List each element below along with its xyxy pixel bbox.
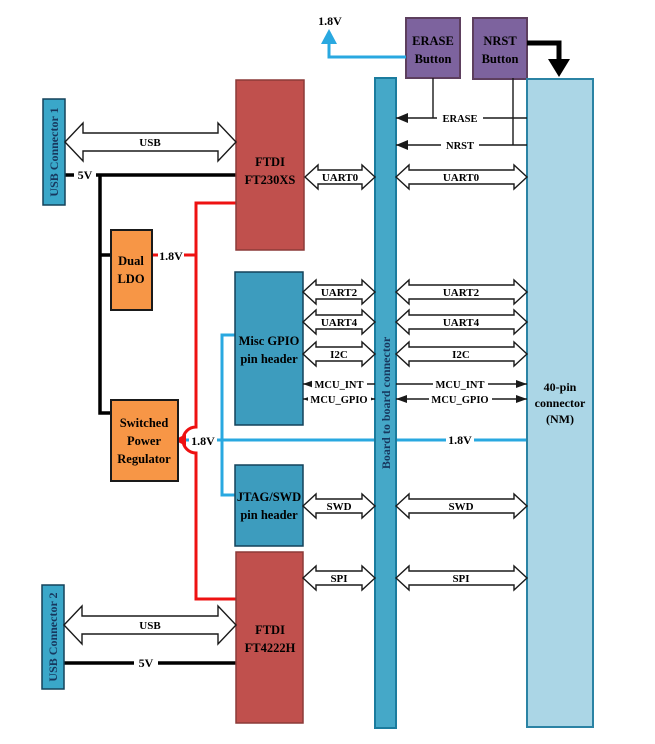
wire-5v-branch bbox=[100, 175, 111, 413]
wire-1v8-erase-pullup bbox=[329, 42, 406, 57]
board-to-board-label: Board to board connector bbox=[379, 336, 393, 469]
label-1v8-top: 1.8V bbox=[318, 14, 342, 28]
erase-button-line2: Button bbox=[415, 52, 452, 66]
spi-left-label: SPI bbox=[330, 573, 347, 585]
erase-button-block bbox=[406, 18, 460, 78]
spi-right-label: SPI bbox=[452, 573, 469, 585]
mcu-gpio-right-label: MCU_GPIO bbox=[431, 395, 488, 406]
wire-1v8-red-vertical bbox=[183, 203, 236, 599]
misc-gpio-header-block bbox=[235, 272, 303, 425]
arrow-right-icon bbox=[516, 380, 527, 388]
jtag-swd-line1: JTAG/SWD bbox=[237, 490, 301, 504]
ftdi-ft4222h-line1: FTDI bbox=[255, 623, 285, 637]
ftdi-ft230xs-line1: FTDI bbox=[255, 155, 285, 169]
ftdi-ft4222h-block bbox=[236, 552, 303, 723]
40pin-line1: 40-pin bbox=[544, 380, 577, 394]
jtag-swd-header-block bbox=[235, 465, 303, 546]
erase-signal-label: ERASE bbox=[442, 114, 477, 125]
usb-top-label: USB bbox=[139, 137, 161, 149]
uart4-left-label: UART4 bbox=[321, 317, 358, 329]
spr-line3: Regulator bbox=[117, 452, 171, 466]
mcu-gpio-left-label: MCU_GPIO bbox=[310, 395, 367, 406]
label-1v8-rail-left: 1.8V bbox=[191, 434, 215, 448]
arrow-left-icon bbox=[396, 395, 407, 403]
label-5v-top: 5V bbox=[78, 168, 93, 182]
nrst-signal-label: NRST bbox=[446, 141, 474, 152]
i2c-right-label: I2C bbox=[452, 349, 470, 361]
uart0-right-label: UART0 bbox=[443, 172, 480, 184]
arrow-up-icon bbox=[321, 29, 337, 44]
nrst-button-line2: Button bbox=[482, 52, 519, 66]
ftdi-ft4222h-line2: FT4222H bbox=[245, 641, 296, 655]
uart0-left-label: UART0 bbox=[322, 172, 359, 184]
label-1v8-rail-right: 1.8V bbox=[448, 433, 472, 447]
swd-left-label: SWD bbox=[326, 501, 351, 513]
dual-ldo-line2: LDO bbox=[117, 272, 144, 286]
40pin-line3: (NM) bbox=[546, 412, 574, 426]
spr-line1: Switched bbox=[120, 416, 169, 430]
ftdi-ft230xs-line2: FT230XS bbox=[245, 173, 296, 187]
swd-right-label: SWD bbox=[448, 501, 473, 513]
spr-line2: Power bbox=[127, 434, 161, 448]
usb-connector-2-label: USB Connector 2 bbox=[46, 592, 60, 681]
nrst-button-line1: NRST bbox=[483, 34, 517, 48]
usb-connector-1-label: USB Connector 1 bbox=[47, 107, 61, 196]
40pin-line2: connector bbox=[535, 396, 586, 410]
uart4-right-label: UART4 bbox=[443, 317, 480, 329]
mcu-int-left-label: MCU_INT bbox=[315, 380, 364, 391]
wire-1v8-header-branch bbox=[222, 335, 235, 495]
uart2-left-label: UART2 bbox=[321, 287, 358, 299]
i2c-left-label: I2C bbox=[330, 349, 348, 361]
block-diagram: 5V 5V 1.8V 1.8V 1.8V USB Connector 1 USB… bbox=[0, 0, 655, 744]
dual-ldo-block bbox=[111, 230, 152, 310]
nrst-button-block bbox=[473, 18, 527, 79]
arrow-down-icon bbox=[548, 59, 570, 77]
diagram-canvas: 5V 5V 1.8V 1.8V 1.8V USB Connector 1 USB… bbox=[0, 0, 655, 744]
erase-button-line1: ERASE bbox=[412, 34, 454, 48]
arrow-left-icon bbox=[396, 113, 408, 123]
misc-gpio-line1: Misc GPIO bbox=[239, 334, 300, 348]
label-5v-bottom: 5V bbox=[139, 656, 154, 670]
dual-ldo-line1: Dual bbox=[118, 254, 144, 268]
uart2-right-label: UART2 bbox=[443, 287, 480, 299]
mcu-int-right-label: MCU_INT bbox=[436, 380, 485, 391]
jtag-swd-line2: pin header bbox=[240, 508, 298, 522]
usb-bottom-label: USB bbox=[139, 620, 161, 632]
misc-gpio-line2: pin header bbox=[240, 352, 298, 366]
arrow-right-icon bbox=[516, 395, 527, 403]
arrow-left-icon bbox=[396, 140, 408, 150]
signal-lines: ERASE NRST MCU_INT MCU_GPIO MCU_INT MCU_… bbox=[303, 111, 527, 406]
label-1v8-ldo: 1.8V bbox=[159, 249, 183, 263]
